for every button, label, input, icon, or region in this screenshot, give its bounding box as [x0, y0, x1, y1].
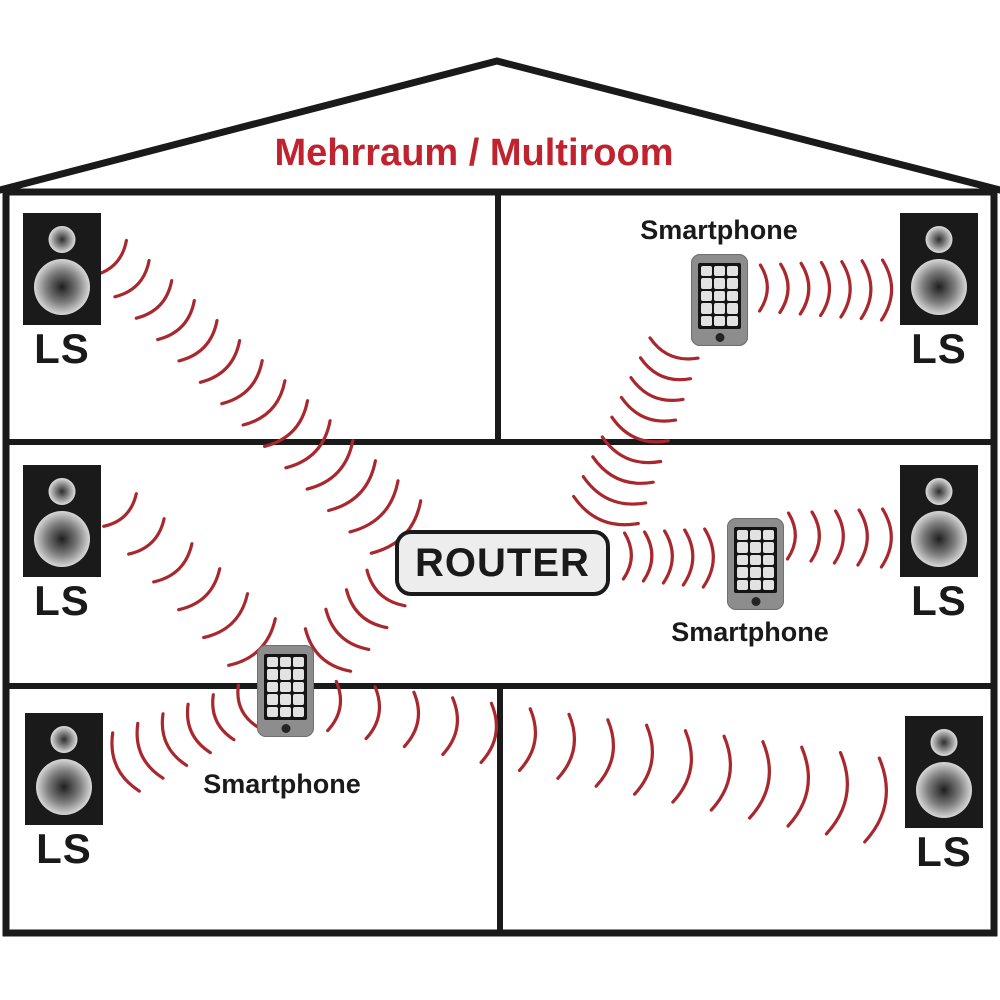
speaker-middle-left: LS — [23, 465, 101, 577]
smartphone-key — [750, 580, 761, 590]
smartphone-key — [280, 682, 291, 692]
wave-arc — [703, 529, 713, 587]
smartphone-icon-middle-room — [727, 518, 784, 610]
wave-arc — [558, 714, 575, 778]
wave-chain-phone-middle-room-to-speaker-middle-right — [788, 509, 892, 567]
smartphone-key — [701, 291, 712, 301]
wave-arc — [643, 532, 651, 581]
wave-arc — [788, 747, 808, 826]
smartphone-key — [714, 316, 725, 326]
wave-arc — [154, 544, 192, 582]
smartphone-icon-hallway — [257, 645, 314, 737]
smartphone-key — [293, 707, 304, 717]
smartphone-key — [727, 266, 738, 276]
speaker-label-bottom-right: LS — [905, 831, 983, 873]
smartphone-key — [763, 580, 774, 590]
wave-arc — [104, 494, 137, 527]
speaker-label-top-right: LS — [900, 328, 978, 370]
wave-chain-router-to-phone-hallway — [305, 570, 405, 671]
speaker-label-middle-right: LS — [900, 580, 978, 622]
wave-arc — [404, 692, 418, 746]
wave-arc — [641, 358, 691, 380]
router-label: ROUTER — [415, 541, 590, 586]
wave-chain-phone-hallway-to-speaker-bottom-right — [328, 681, 887, 842]
speaker-woofer-icon — [34, 259, 90, 315]
smartphone-key — [763, 542, 774, 552]
wave-arc — [800, 263, 809, 314]
wave-arc — [750, 742, 770, 818]
smartphone-home-button — [715, 333, 724, 342]
smartphone-key — [737, 567, 748, 577]
wave-arc — [780, 264, 788, 312]
smartphone-key — [750, 555, 761, 565]
speaker-bottom-right: LS — [905, 716, 983, 828]
smartphone-screen — [734, 527, 777, 593]
smartphone-key — [701, 266, 712, 276]
smartphone-key — [714, 291, 725, 301]
router-box: ROUTER — [395, 530, 610, 596]
wave-arc — [593, 457, 653, 484]
smartphone-key — [293, 694, 304, 704]
wave-arc — [583, 477, 645, 504]
smartphone-key — [737, 542, 748, 552]
smartphone-key — [714, 278, 725, 288]
wave-arc — [443, 698, 458, 755]
wave-arc — [179, 321, 217, 361]
speaker-bottom-left: LS — [25, 713, 103, 825]
wave-chain-router-to-phone-middle-room — [623, 529, 713, 587]
smartphone-key — [750, 567, 761, 577]
wave-chain-phone-top-right-to-router — [574, 338, 698, 525]
smartphone-key — [763, 567, 774, 577]
wave-arc — [760, 265, 768, 311]
smartphone-key — [267, 694, 278, 704]
wave-arc — [350, 481, 398, 532]
wave-arc — [329, 461, 376, 511]
smartphone-key — [750, 542, 761, 552]
smartphone-key — [267, 707, 278, 717]
wave-arc — [683, 530, 693, 585]
wave-arc — [861, 261, 871, 319]
smartphone-screen — [698, 263, 741, 329]
wave-arc — [179, 569, 220, 610]
speaker-tweeter-icon — [49, 478, 76, 505]
wave-chain-phone-top-right-to-speaker-top-right — [760, 260, 892, 320]
wave-arc — [881, 509, 891, 567]
wave-chain-speaker-middle-left-to-phone-hallway — [104, 494, 276, 666]
speaker-tweeter-icon — [926, 478, 953, 505]
smartphone-label-middle-room: Smartphone — [671, 618, 829, 648]
speaker-label-bottom-left: LS — [25, 828, 103, 870]
wave-arc — [115, 261, 149, 297]
wave-arc — [663, 531, 672, 583]
smartphone-key — [763, 530, 774, 540]
smartphone-icon-top-right-room — [691, 254, 748, 346]
smartphone-screen — [264, 654, 307, 720]
smartphone-key — [267, 682, 278, 692]
diagram-title: Mehrraum / Multiroom — [174, 132, 774, 175]
smartphone-key — [293, 682, 304, 692]
smartphone-key — [727, 278, 738, 288]
smartphone-key — [763, 555, 774, 565]
speaker-tweeter-icon — [926, 226, 953, 253]
speaker-middle-right: LS — [900, 465, 978, 577]
multiroom-diagram: Mehrraum / Multiroom ROUTER LSLSLSLSLSLS… — [0, 0, 1000, 1000]
smartphone-key — [727, 316, 738, 326]
smartphone-key — [280, 707, 291, 717]
speaker-woofer-icon — [36, 759, 92, 815]
smartphone-key — [714, 303, 725, 313]
smartphone-key — [280, 694, 291, 704]
wave-arc — [650, 338, 698, 359]
wave-arc — [481, 703, 496, 762]
wave-arc — [112, 733, 139, 791]
wave-arc — [129, 519, 164, 554]
smartphone-key — [267, 657, 278, 667]
smartphone-key — [727, 303, 738, 313]
smartphone-key — [267, 669, 278, 679]
speaker-woofer-icon — [34, 511, 90, 567]
smartphone-key — [737, 580, 748, 590]
wave-arc — [858, 510, 867, 565]
wave-arc — [187, 704, 210, 752]
wave-arc — [811, 512, 819, 561]
wave-arc — [673, 731, 692, 802]
speaker-tweeter-icon — [931, 729, 958, 756]
smartphone-home-button — [281, 724, 290, 733]
speaker-top-left: LS — [23, 213, 101, 325]
wave-arc — [821, 263, 830, 316]
speaker-tweeter-icon — [49, 226, 76, 253]
wave-arc — [162, 714, 186, 766]
wave-arc — [865, 758, 887, 842]
speaker-label-top-left: LS — [23, 328, 101, 370]
wave-arc — [158, 301, 195, 340]
smartphone-key — [737, 530, 748, 540]
wave-arc — [788, 513, 796, 559]
smartphone-key — [701, 303, 712, 313]
wave-arc — [635, 725, 653, 794]
wave-arc — [136, 281, 171, 319]
smartphone-key — [701, 316, 712, 326]
smartphone-label-hallway: Smartphone — [203, 770, 361, 800]
wave-arc — [596, 720, 613, 786]
smartphone-label-top-right-room: Smartphone — [640, 216, 798, 246]
speaker-top-right: LS — [900, 213, 978, 325]
smartphone-key — [293, 669, 304, 679]
wave-arc — [882, 260, 892, 320]
wave-arc — [366, 687, 379, 739]
smartphone-key — [280, 669, 291, 679]
speaker-woofer-icon — [911, 511, 967, 567]
wave-arc — [213, 695, 234, 740]
smartphone-key — [727, 291, 738, 301]
smartphone-key — [701, 278, 712, 288]
smartphone-key — [714, 266, 725, 276]
speaker-tweeter-icon — [51, 726, 78, 753]
wave-arc — [238, 685, 258, 727]
smartphone-key — [293, 657, 304, 667]
wave-arc — [711, 736, 730, 810]
wave-arc — [834, 511, 843, 563]
speaker-woofer-icon — [916, 762, 972, 818]
smartphone-key — [280, 657, 291, 667]
wave-arc — [307, 441, 353, 489]
wave-arc — [137, 723, 163, 778]
wave-arc — [204, 594, 248, 638]
wave-arc — [520, 709, 536, 771]
speaker-woofer-icon — [911, 259, 967, 315]
speaker-label-middle-left: LS — [23, 580, 101, 622]
wave-chain-speaker-top-left-to-router — [94, 241, 421, 554]
wave-arc — [826, 753, 847, 834]
wave-arc — [623, 533, 631, 579]
smartphone-key — [737, 555, 748, 565]
wave-arc — [574, 497, 639, 525]
smartphone-home-button — [751, 597, 760, 606]
smartphone-key — [750, 530, 761, 540]
wave-arc — [841, 262, 850, 317]
